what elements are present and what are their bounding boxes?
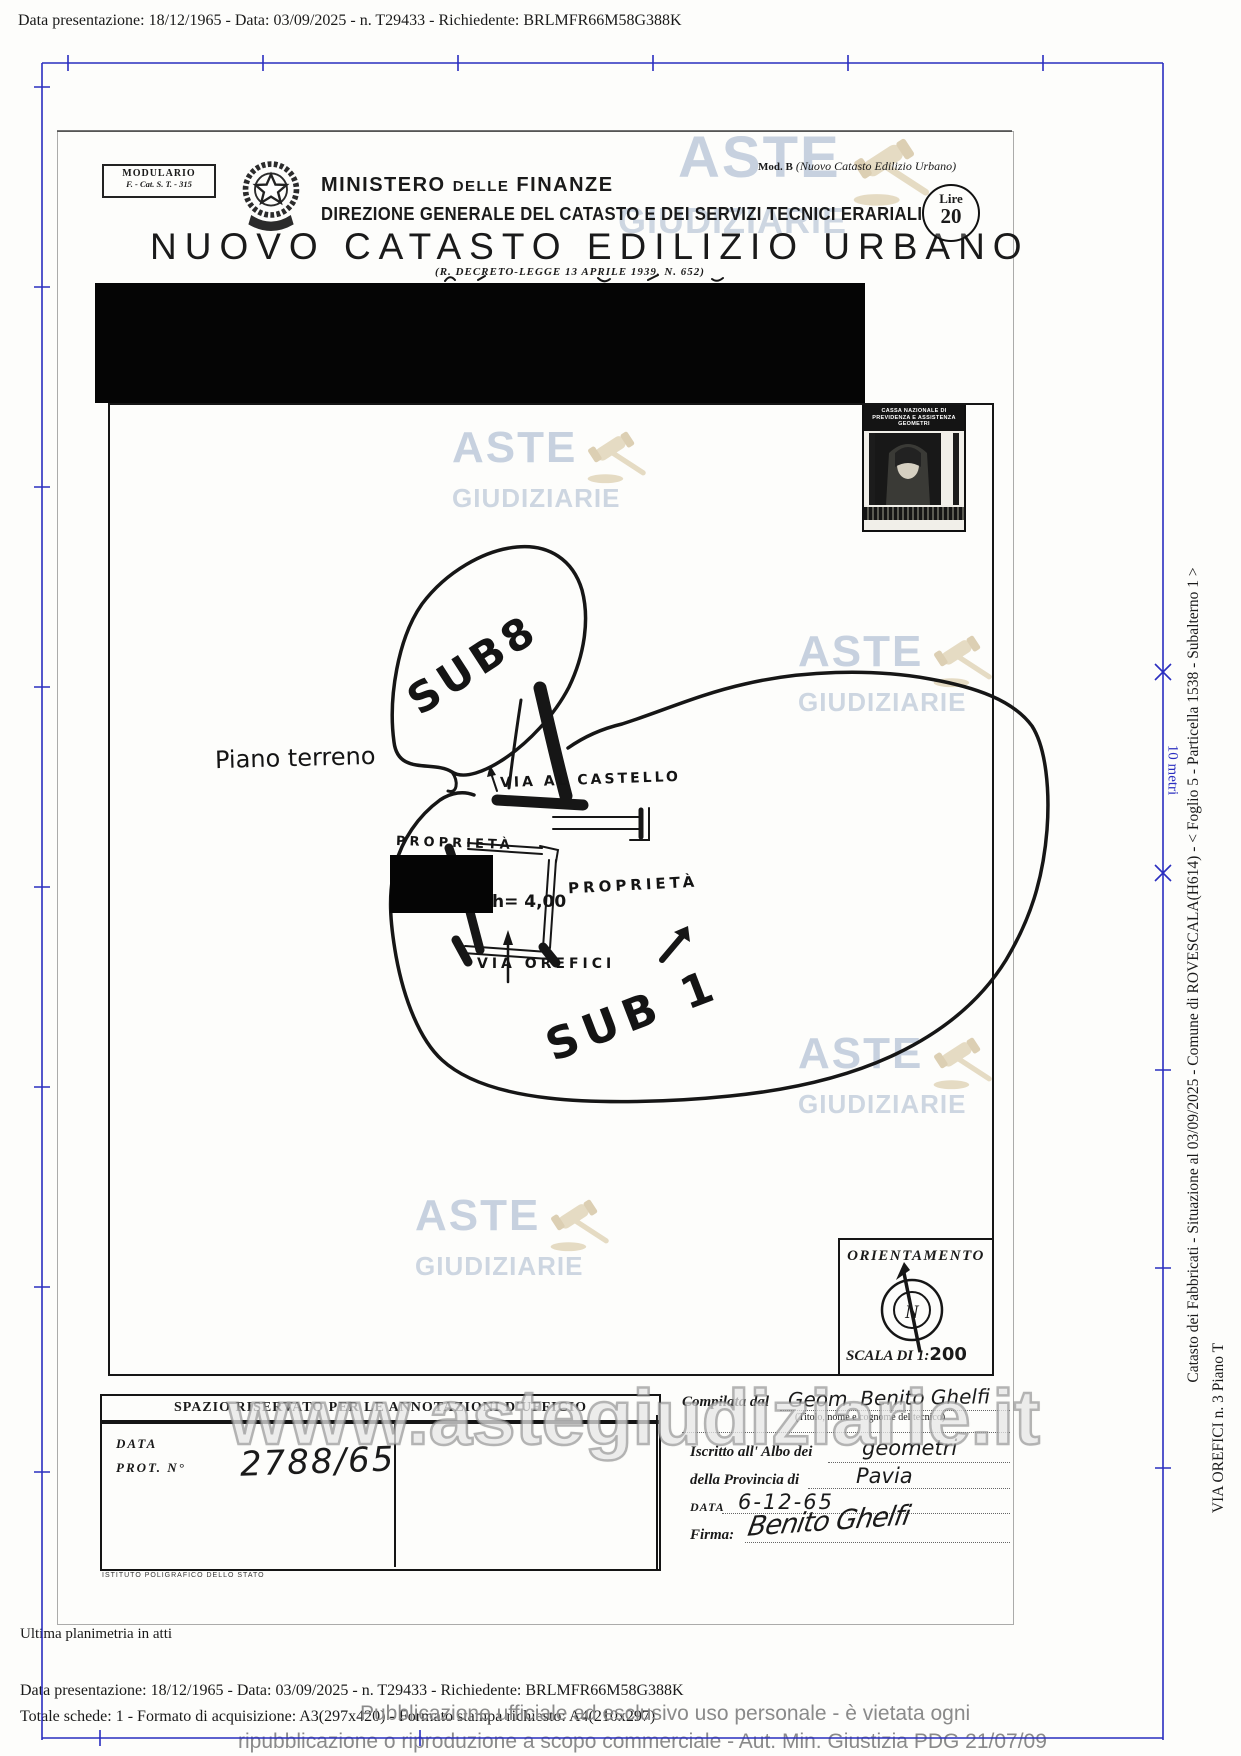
- sidebar-measure-label: 10 metri: [1164, 725, 1181, 815]
- blue-measure-frame: [0, 0, 1241, 1756]
- cadastral-document-page: Data presentazione: 18/12/1965 - Data: 0…: [0, 0, 1241, 1756]
- sidebar-info-line: Catasto dei Fabbricati - Situazione al 0…: [1185, 365, 1203, 1585]
- sidebar-address-line: VIA OREFICI n. 3 Piano T: [1210, 1278, 1228, 1578]
